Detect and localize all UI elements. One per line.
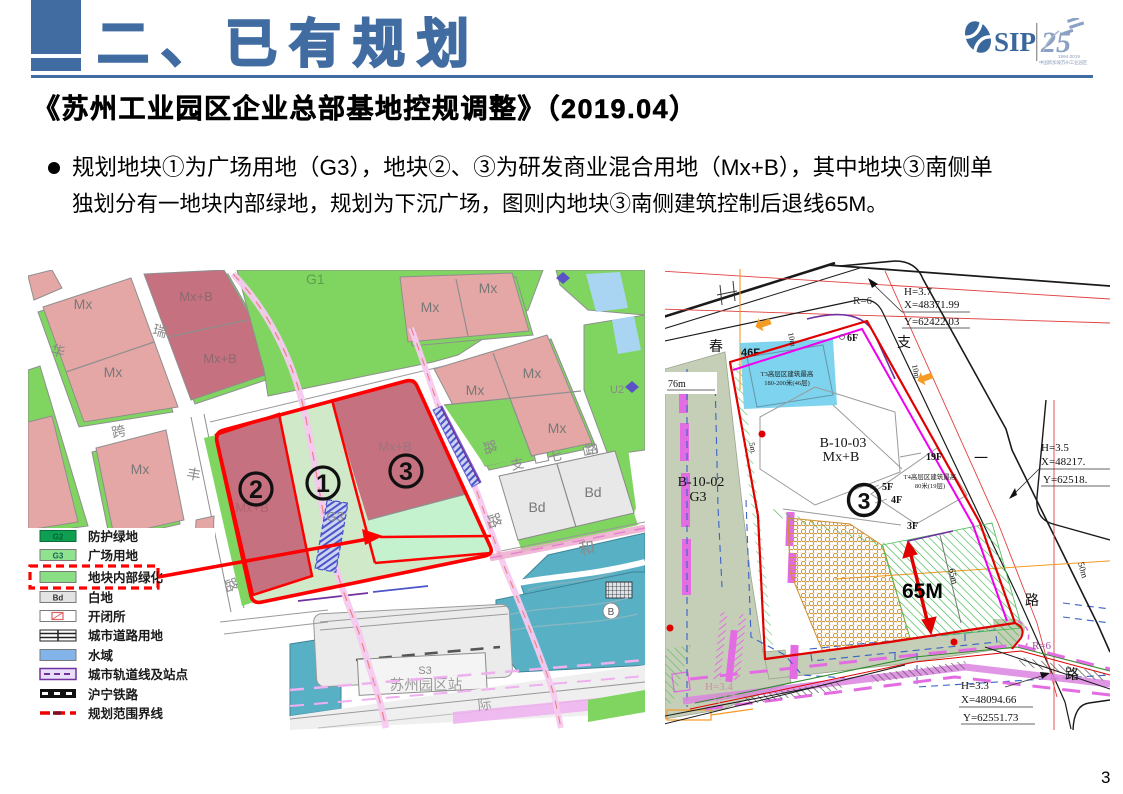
svg-text:Bd: Bd [584, 484, 601, 500]
svg-text:H=3.7: H=3.7 [904, 286, 932, 298]
svg-text:R=6: R=6 [1032, 640, 1052, 652]
svg-text:X=48371.99: X=48371.99 [904, 299, 960, 311]
svg-text:R=6: R=6 [853, 295, 873, 307]
svg-text:广场用地: 广场用地 [88, 548, 139, 563]
svg-text:6F: 6F [847, 333, 858, 344]
svg-text:规划范围界线: 规划范围界线 [88, 706, 164, 721]
svg-text:白地: 白地 [88, 590, 114, 605]
svg-text:沪宁铁路: 沪宁铁路 [88, 687, 139, 702]
svg-text:Mx: Mx [523, 365, 542, 381]
svg-text:Mx: Mx [104, 364, 123, 380]
svg-text:H=3.3: H=3.3 [961, 680, 989, 692]
svg-text:际: 际 [477, 696, 493, 713]
svg-text:Mx: Mx [479, 280, 498, 296]
svg-text:80米(19层): 80米(19层) [915, 481, 945, 490]
svg-text:Mx+B: Mx+B [179, 289, 213, 304]
svg-text:苏州园区站: 苏州园区站 [390, 677, 463, 694]
svg-text:水域: 水域 [88, 648, 114, 663]
svg-text:Y=62551.73: Y=62551.73 [963, 712, 1019, 724]
svg-text:4F: 4F [891, 495, 902, 506]
svg-text:城市道路用地: 城市道路用地 [88, 628, 164, 643]
svg-text:SIP: SIP [994, 27, 1036, 57]
svg-text:2: 2 [249, 476, 263, 504]
svg-text:Mx: Mx [466, 382, 485, 398]
svg-text:U2: U2 [610, 384, 624, 396]
svg-text:路: 路 [1065, 666, 1079, 682]
svg-text:180-200米(46层): 180-200米(46层) [764, 378, 810, 387]
svg-text:地块内部绿化: 地块内部绿化 [88, 570, 164, 585]
svg-text:G3: G3 [326, 509, 343, 524]
svg-text:B-10-02: B-10-02 [678, 475, 725, 490]
svg-text:1994-2019: 1994-2019 [1058, 54, 1080, 59]
svg-text:Mx: Mx [548, 420, 567, 436]
svg-text:1: 1 [316, 470, 330, 498]
svg-text:支: 支 [897, 334, 911, 350]
svg-text:3F: 3F [907, 521, 918, 532]
svg-text:G3: G3 [689, 490, 706, 505]
svg-text:春: 春 [709, 338, 723, 354]
svg-text:开闭所: 开闭所 [88, 609, 126, 624]
svg-text:G3: G3 [53, 552, 64, 561]
svg-text:Mx+B: Mx+B [823, 450, 860, 465]
svg-text:H=3.4: H=3.4 [705, 681, 733, 693]
svg-text:B-10-03: B-10-03 [820, 436, 867, 451]
svg-text:Y=62518.: Y=62518. [1043, 474, 1088, 486]
svg-text:一: 一 [974, 450, 988, 466]
svg-text:T3高层区建筑最高: T3高层区建筑最高 [761, 369, 814, 378]
svg-text:中国新加坡苏州工业园区: 中国新加坡苏州工业园区 [1039, 59, 1088, 66]
svg-text:Mx+B: Mx+B [203, 351, 237, 366]
svg-text:防护绿地: 防护绿地 [88, 529, 139, 544]
svg-text:B: B [608, 607, 615, 618]
svg-text:Y=62422.03: Y=62422.03 [904, 316, 960, 328]
svg-text:65M: 65M [902, 580, 943, 603]
svg-text:19F: 19F [926, 452, 942, 463]
svg-text:H=3.5: H=3.5 [1041, 442, 1069, 454]
svg-text:Mx: Mx [421, 299, 440, 315]
svg-text:T4高层区建筑最高: T4高层区建筑最高 [904, 472, 957, 481]
svg-text:5F: 5F [882, 482, 893, 493]
svg-text:Bd: Bd [528, 499, 545, 515]
svg-text:3: 3 [858, 488, 871, 514]
svg-text:丰: 丰 [185, 465, 202, 483]
svg-text:Mx: Mx [74, 296, 93, 312]
svg-text:路: 路 [1025, 592, 1039, 608]
svg-text:G1: G1 [306, 271, 325, 287]
svg-text:S3: S3 [418, 665, 431, 677]
svg-text:76m: 76m [668, 379, 686, 390]
svg-text:和: 和 [578, 538, 597, 559]
svg-text:Mx+B: Mx+B [378, 439, 412, 454]
svg-text:Mx: Mx [131, 461, 150, 477]
svg-text:城市轨道线及站点: 城市轨道线及站点 [88, 667, 189, 682]
svg-text:G2: G2 [53, 533, 64, 542]
svg-text:X=48217.: X=48217. [1041, 456, 1086, 468]
svg-text:Bd: Bd [53, 594, 64, 603]
svg-text:X=48094.66: X=48094.66 [961, 694, 1017, 706]
svg-text:3: 3 [399, 458, 413, 486]
